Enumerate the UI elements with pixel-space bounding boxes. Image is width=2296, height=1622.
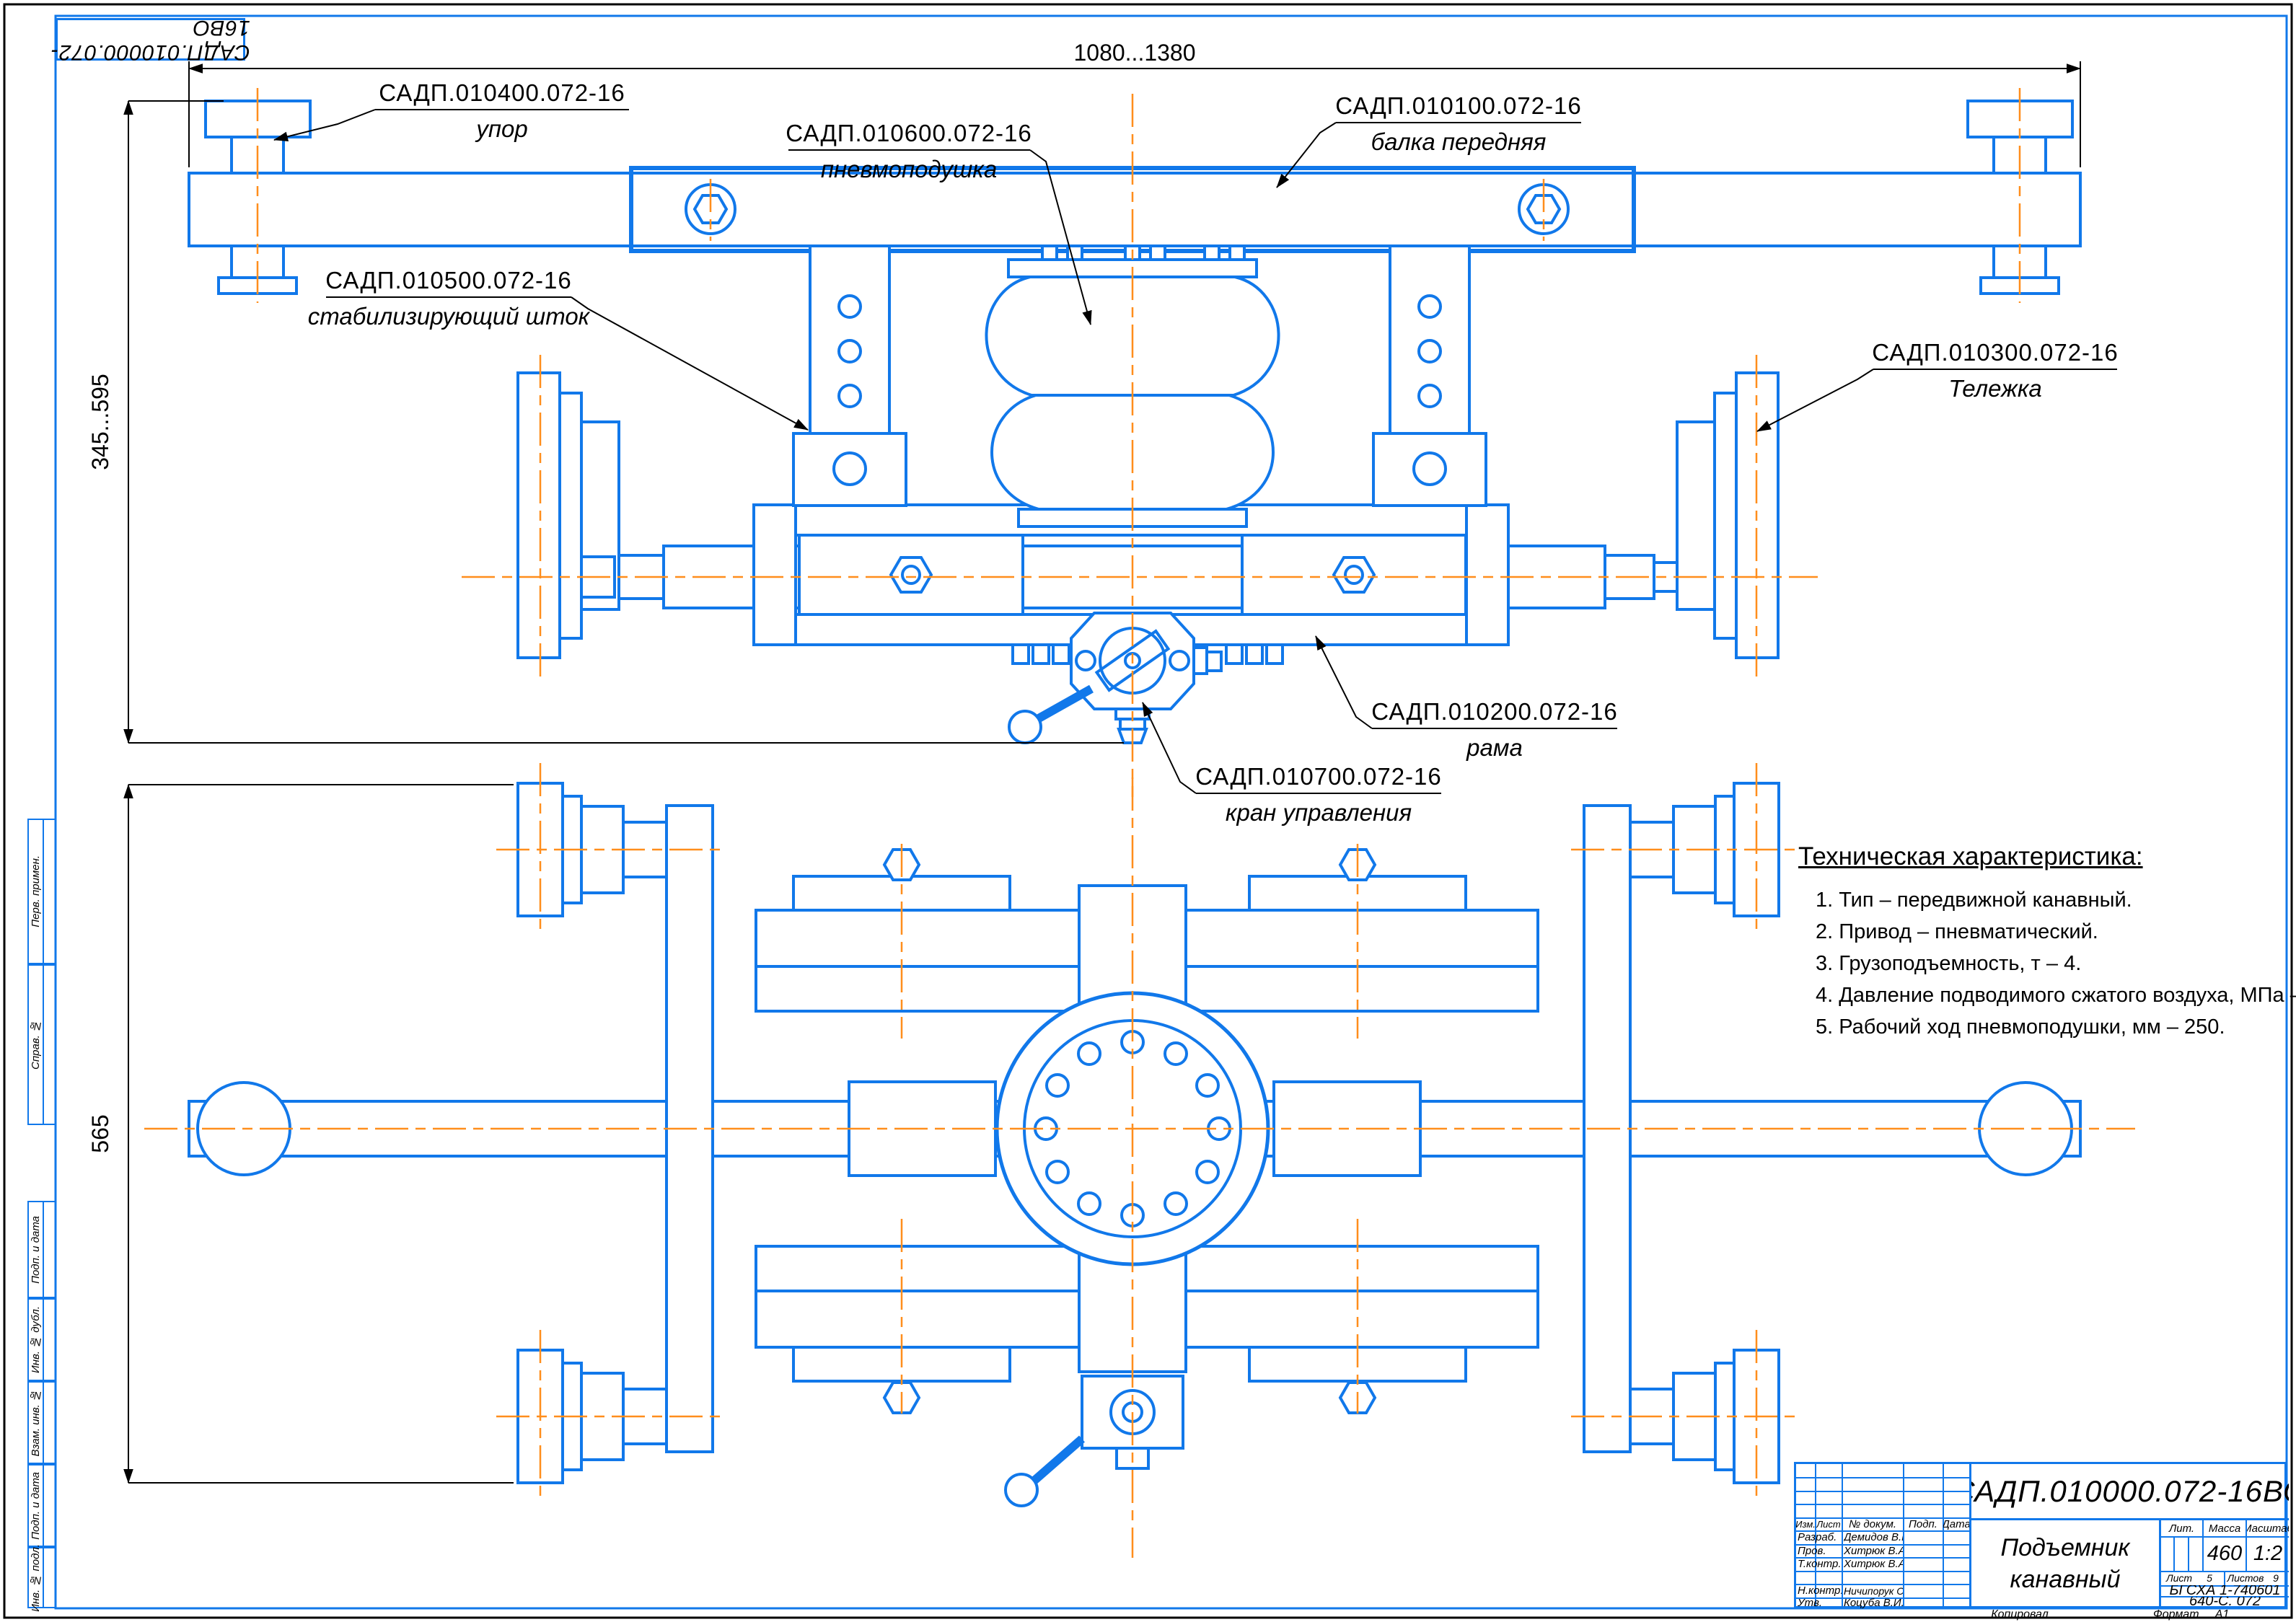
tb-scale-label: Масштаб — [2247, 1520, 2289, 1536]
corner-doc-number: САДП.010000.072-16ВО — [50, 15, 250, 64]
title-block: Изм. Лист № докум. Подп. Дата Разраб. Де… — [1794, 1462, 2287, 1608]
side-stamp-label: Справ. № — [29, 966, 44, 1124]
tb-org-line2: 640-С. 072 — [2161, 1597, 2289, 1606]
side-stamp-label: Подп. и дата — [29, 1202, 44, 1297]
tb-role: Т.контр. — [1798, 1557, 1842, 1571]
callout-code: САДП.010700.072-16 — [1195, 760, 1442, 793]
callout-frame: САДП.010200.072-16 рама — [1371, 695, 1618, 762]
tb-mass-label: Масса — [2204, 1520, 2246, 1536]
front-beam — [189, 173, 2080, 246]
tb-header-podp: Подп. — [1904, 1517, 1943, 1530]
side-stamp-podp-data-2: Подп. и дата — [27, 1464, 56, 1547]
tech-spec: Техническая характеристика: 1. Тип – пер… — [1798, 842, 2296, 1043]
format-label: Формат А1 — [2153, 1609, 2229, 1620]
tb-sheets-label: Листов — [2226, 1571, 2265, 1585]
tb-name: Коцуба В.И. — [1844, 1597, 1903, 1608]
callout-code: САДП.010300.072-16 — [1872, 336, 2119, 369]
side-stamp-label: Перв. примен. — [29, 820, 44, 963]
drawing-sheet: { "page": { "corner_doc_number": "САДП.0… — [0, 0, 2296, 1622]
callout-front-beam: САДП.010100.072-16 балка передняя — [1335, 89, 1582, 156]
tech-spec-item: 5. Рабочий ход пневмоподушки, мм – 250. — [1816, 1011, 2296, 1043]
tb-name: Хитрюк В.А. — [1844, 1557, 1903, 1571]
tb-header-izm: Изм. — [1796, 1517, 1815, 1530]
callout-name: кран управления — [1195, 799, 1442, 827]
side-stamp-label: Взам. инв. № — [29, 1383, 44, 1463]
tb-name: Ничипорук С.Н. — [1844, 1584, 1903, 1597]
trolley-wheel-left — [518, 373, 619, 658]
tb-role: Пров. — [1798, 1544, 1842, 1557]
tech-spec-items: 1. Тип – передвижной канавный. 2. Привод… — [1798, 884, 2296, 1043]
plan-control-valve — [1006, 1376, 1183, 1506]
callout-name: рама — [1371, 734, 1618, 762]
side-stamp-inv-dubl: Инв. № дубл. — [27, 1298, 56, 1381]
corner-doc-stamp: САДП.010000.072-16ВО — [56, 18, 245, 61]
dim-top-text: 1080...1380 — [1073, 40, 1195, 66]
stabilizer-rod-right — [1373, 246, 1486, 506]
tb-mass-value: 460 — [2204, 1538, 2246, 1569]
copied-label: Копировал — [1948, 1609, 2092, 1620]
callout-name: упор — [379, 115, 625, 143]
tech-spec-item: 1. Тип – передвижной канавный. — [1816, 884, 2296, 916]
tech-spec-item: 4. Давление подводимого сжатого воздуха,… — [1816, 979, 2296, 1011]
callout-code: САДП.010600.072-16 — [786, 117, 1032, 150]
side-stamp-podp-data-1: Подп. и дата — [27, 1201, 56, 1298]
tb-org-line1: БГСХА 1-740601 — [2161, 1585, 2289, 1596]
callout-code: САДП.010400.072-16 — [379, 76, 625, 110]
callout-code: САДП.010200.072-16 — [1371, 695, 1618, 728]
stabilizer-rod-left — [793, 246, 906, 506]
side-stamp-label: Подп. и дата — [29, 1465, 44, 1546]
side-stamp-label: Инв. № подл. — [29, 1548, 44, 1607]
tech-spec-item: 2. Привод – пневматический. — [1816, 916, 2296, 948]
tb-header-doc: № докум. — [1842, 1517, 1903, 1530]
front-view — [189, 101, 2080, 743]
plan-view — [189, 783, 2080, 1506]
callout-stabilizer: САДП.010500.072-16 стабилизирующий шток — [308, 264, 590, 330]
dim-left-front-text: 345...595 — [87, 374, 113, 470]
tb-header-data: Дата — [1943, 1517, 1969, 1530]
tb-role: Н.контр. — [1798, 1584, 1842, 1597]
tech-spec-title: Техническая характеристика: — [1798, 842, 2296, 871]
callout-name: балка передняя — [1335, 128, 1582, 156]
callout-name: пневмоподушка — [786, 156, 1032, 183]
tb-role: Разраб. — [1798, 1530, 1842, 1544]
side-stamp-vzam-inv: Взам. инв. № — [27, 1381, 56, 1464]
tb-name: Хитрюк В.А. — [1844, 1544, 1903, 1557]
callout-code: САДП.010500.072-16 — [308, 264, 590, 297]
side-stamp-sprav: Справ. № — [27, 964, 56, 1125]
tb-part-name-line1: Подъемник — [2001, 1532, 2130, 1564]
drawing-canvas: 1080...1380 345...595 565 — [0, 0, 2296, 1622]
tb-part-name: Подъемник канавный — [1971, 1520, 2159, 1606]
callout-name: Тележка — [1872, 375, 2119, 402]
tb-sheet-value: 5 — [2197, 1571, 2222, 1585]
tb-sheets-value: 9 — [2265, 1571, 2287, 1585]
tb-part-name-line2: канавный — [2010, 1564, 2121, 1595]
callout-bellows: САДП.010600.072-16 пневмоподушка — [786, 117, 1032, 183]
callout-code: САДП.010100.072-16 — [1335, 89, 1582, 123]
side-stamp-perv-primen: Перв. примен. — [27, 819, 56, 964]
callout-valve: САДП.010700.072-16 кран управления — [1195, 760, 1442, 827]
side-stamp-label: Инв. № дубл. — [29, 1300, 44, 1380]
tb-header-list: Лист — [1816, 1517, 1842, 1530]
format-word: Формат — [2153, 1608, 2199, 1621]
tb-scale-value: 1:2 — [2247, 1538, 2289, 1569]
tb-lit-label: Лит. — [2161, 1520, 2202, 1536]
callout-trolley: САДП.010300.072-16 Тележка — [1872, 336, 2119, 402]
tb-name: Демидов В.В. — [1844, 1530, 1903, 1544]
tb-doc-number: САДП.010000.072-16ВО — [1971, 1464, 2289, 1518]
tb-sheet-label: Лист — [2161, 1571, 2197, 1585]
tech-spec-item: 3. Грузоподъемность, т – 4. — [1816, 948, 2296, 979]
side-stamp-inv-podl: Инв. № подл. — [27, 1547, 56, 1608]
dim-left-plan-text: 565 — [87, 1114, 113, 1152]
tb-role: Утв. — [1798, 1597, 1842, 1608]
trolley-wheel-right — [1654, 373, 1778, 658]
callout-name: стабилизирующий шток — [308, 303, 590, 330]
format-value: А1 — [2215, 1608, 2230, 1621]
callout-stop: САДП.010400.072-16 упор — [379, 76, 625, 143]
